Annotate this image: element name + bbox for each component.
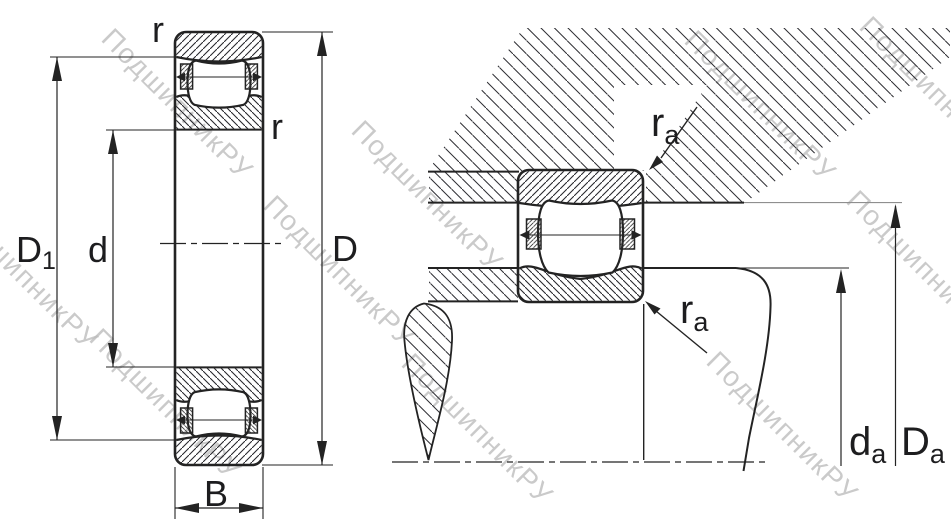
arrow-B-right — [239, 503, 263, 513]
roller-axis-tick-right — [632, 230, 642, 240]
label-Da: Da — [901, 420, 946, 469]
label-ra-top-main: r — [651, 101, 664, 145]
label-D: D — [332, 228, 358, 269]
drawing-canvas: ПодшипникРУ ПодшипникРУ ПодшипникРУ Подш… — [0, 0, 951, 532]
barrel-roller — [188, 389, 251, 436]
label-D1-main: D — [16, 229, 42, 270]
label-r-top: r — [152, 9, 164, 50]
arrow-B-left — [175, 503, 199, 513]
outer-ring-section — [176, 33, 261, 61]
shaft-shoulder-band — [429, 269, 518, 302]
label-da: da — [849, 420, 887, 469]
left-view-bearing-section — [160, 32, 281, 465]
label-D1-sub: 1 — [42, 247, 56, 275]
arrow-D1-up — [52, 57, 62, 81]
arrow-D1-down — [52, 416, 62, 440]
outer-ring-section — [176, 436, 261, 464]
shaft-break-section — [404, 304, 452, 461]
label-ra-top-sub: a — [664, 120, 680, 150]
label-d: d — [88, 229, 108, 270]
label-r-bore: r — [271, 106, 283, 147]
barrel-roller — [538, 201, 623, 277]
label-da-main: d — [849, 420, 871, 464]
label-ra-bottom-sub: a — [693, 307, 709, 337]
label-B: B — [204, 473, 228, 514]
label-D1: D1 — [16, 229, 56, 275]
arrow-D-up — [317, 32, 327, 56]
label-ra-bottom: ra — [680, 288, 709, 337]
housing-shoulder-band — [429, 172, 518, 203]
label-Da-sub: a — [930, 439, 946, 469]
outer-ring-section — [519, 171, 641, 207]
top-half-section — [176, 33, 262, 129]
arrow-D-down — [317, 441, 327, 465]
roller-axis-tick-left — [520, 230, 530, 240]
watermark: ПодшипникРУ — [258, 189, 422, 353]
arrow-da-up — [836, 269, 846, 293]
watermark: ПодшипникРУ — [701, 345, 865, 509]
label-ra-bottom-main: r — [680, 288, 693, 332]
mounted-bearing-section — [518, 170, 643, 302]
label-da-sub: a — [871, 439, 887, 469]
bottom-half-section — [176, 367, 262, 463]
bearing-drawing: ПодшипникРУ ПодшипникРУ ПодшипникРУ Подш… — [0, 0, 951, 532]
arrow-d-up — [108, 130, 118, 154]
label-Da-main: D — [901, 420, 930, 464]
barrel-roller — [188, 61, 251, 108]
